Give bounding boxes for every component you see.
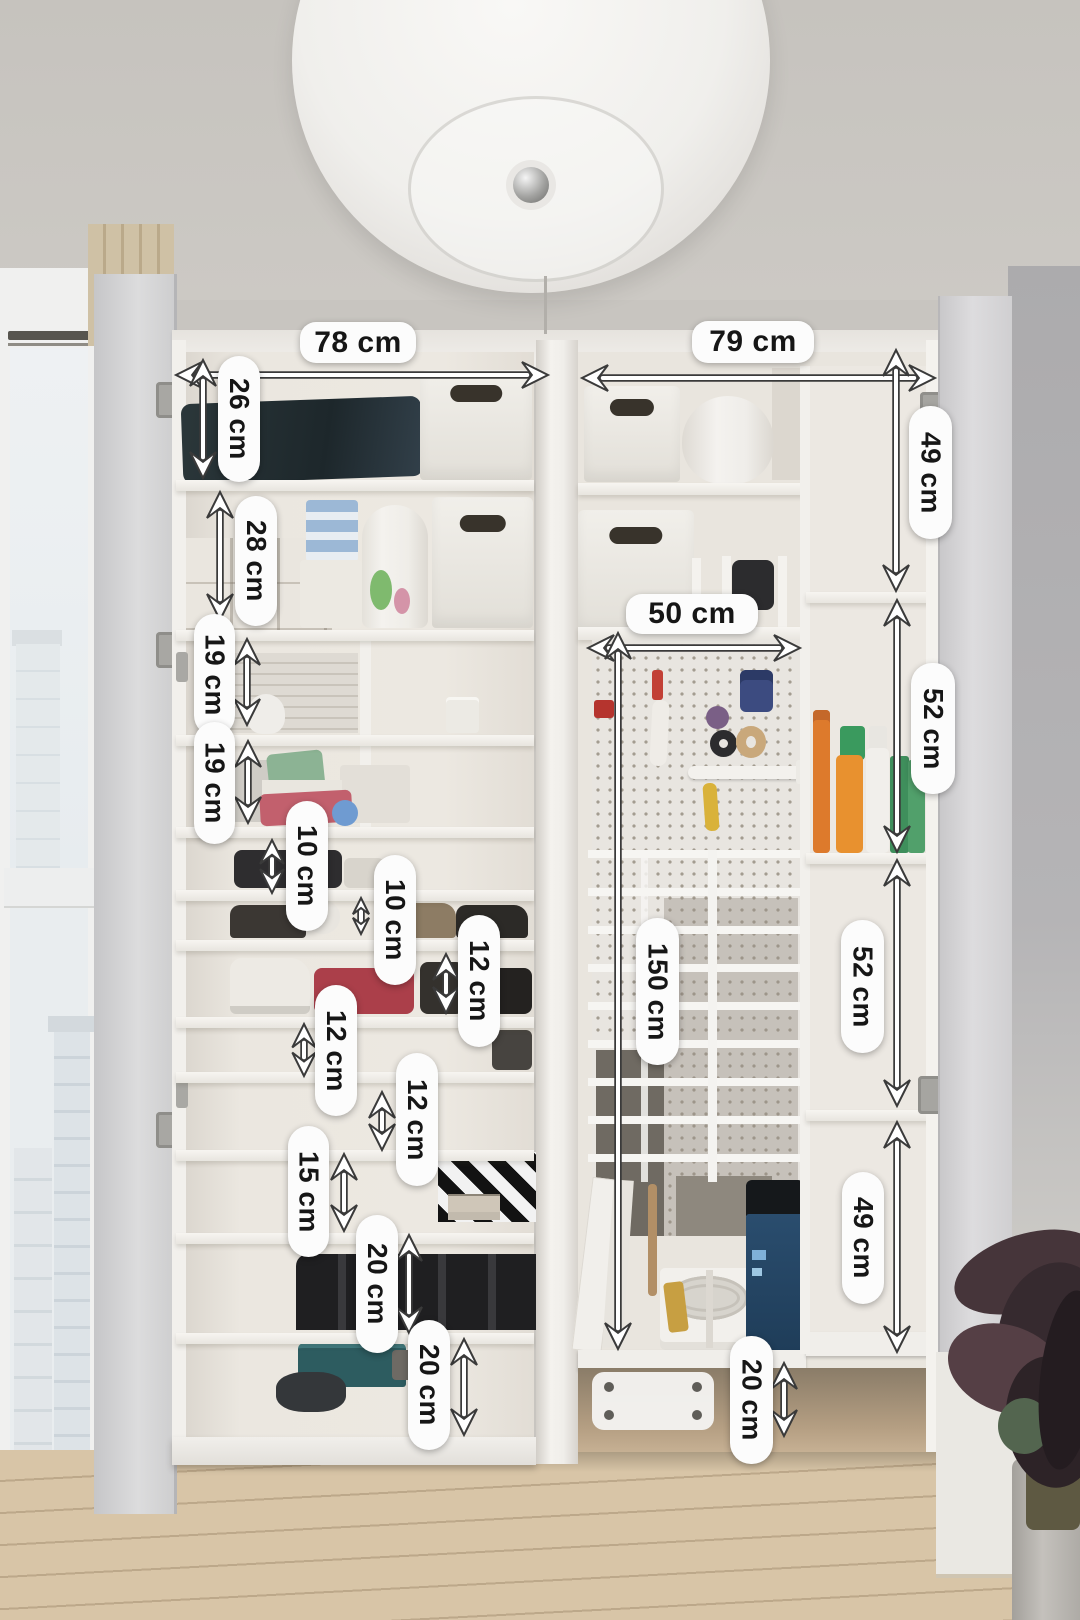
divider-slat	[778, 556, 787, 638]
tan-tape-ring	[736, 726, 766, 758]
spray-bottle-orange	[836, 755, 863, 853]
bin-handle-slot	[609, 527, 662, 544]
cabinet-shelf	[578, 483, 804, 495]
drying-rack	[588, 850, 800, 1182]
dark-shoe	[420, 962, 464, 1014]
white-jar	[247, 694, 285, 734]
toolbox-lid	[746, 1180, 804, 1216]
cabinet-shelf	[806, 853, 930, 864]
cabinet-shelf	[176, 735, 534, 746]
building-silhouette	[48, 1016, 94, 1032]
scale-foot	[604, 1382, 614, 1392]
wooden-stick	[648, 1184, 657, 1296]
cabinet-shelf	[176, 480, 534, 491]
tension-rod	[688, 766, 804, 779]
building-silhouette	[16, 644, 60, 870]
white-tool	[649, 700, 669, 767]
dark-slippers	[234, 850, 342, 888]
green-can	[908, 760, 925, 853]
left-cabinet-door	[94, 274, 177, 1514]
blue-jar	[740, 670, 773, 712]
window-rail-lower	[8, 343, 90, 346]
light-item	[344, 858, 384, 888]
scale-foot	[604, 1410, 614, 1420]
red-marker	[652, 670, 663, 700]
storage-bin	[584, 386, 680, 482]
dark-item	[492, 1030, 532, 1070]
drying-rack-post	[708, 850, 717, 1182]
red-shoes	[314, 968, 414, 1014]
drying-rack-post	[641, 850, 648, 1182]
vacuum-storage-bag	[181, 396, 424, 484]
cabinet-shelf	[176, 1233, 534, 1244]
red-tape	[594, 700, 614, 718]
body-scale	[592, 1372, 714, 1430]
bin-handle-slot	[459, 515, 505, 532]
lamp-knob-metal	[513, 167, 549, 203]
storage-bin	[432, 497, 533, 628]
cabinet-shelf	[176, 630, 534, 641]
building-silhouette	[54, 1032, 90, 1454]
towel-print-pink	[394, 588, 410, 614]
divider-slat	[722, 556, 731, 638]
spray-bottle-white	[866, 748, 889, 853]
window-rail	[8, 331, 90, 340]
left-cabinet-side	[172, 340, 186, 1462]
shoe	[456, 905, 528, 938]
cabinet-shelf	[806, 1110, 930, 1121]
window-crossbar	[4, 868, 96, 908]
green-can	[890, 756, 909, 853]
towel-print-green	[370, 570, 392, 610]
black-item	[732, 560, 774, 610]
hinge-cup	[176, 652, 188, 682]
cabinet-shelf	[176, 1333, 534, 1344]
purple-coil	[706, 706, 729, 729]
black-shoe	[468, 968, 532, 1014]
cabinet-shelf	[176, 827, 534, 838]
shoe	[404, 903, 456, 938]
cabinet-shelf	[176, 940, 534, 951]
white-roll	[682, 396, 774, 484]
blue-item	[332, 800, 358, 826]
divider-slat	[692, 558, 701, 638]
building-silhouette	[14, 1148, 52, 1454]
left-cabinet-base	[172, 1437, 536, 1465]
bin-handle-slot	[450, 385, 502, 402]
toolbox-label	[752, 1250, 766, 1260]
black-tape-ring	[710, 730, 737, 757]
storage-bin	[420, 370, 532, 480]
storage-bin	[578, 510, 694, 634]
right-cabinet-bottom-board	[578, 1350, 806, 1370]
center-divider	[536, 340, 578, 1464]
blue-pack	[306, 500, 358, 562]
white-pack	[300, 560, 362, 628]
cabinet-shelf	[806, 592, 930, 603]
scale-foot	[692, 1410, 702, 1420]
annotated-closet-photo: 78 cm79 cm50 cm26 cm28 cm19 cm19 cm10 cm…	[0, 0, 1080, 1620]
white-ball	[306, 900, 340, 934]
cabinet-top-seam	[544, 276, 547, 334]
bin-handle-slot	[610, 399, 654, 416]
cabinet-shelf	[176, 1017, 534, 1028]
shoebox-label	[448, 1194, 500, 1220]
right-column-bottom-board	[806, 1332, 930, 1356]
blue-toolbox	[746, 1214, 804, 1350]
right-cabinet-side	[926, 340, 938, 1452]
cabinet-shelf	[176, 1072, 534, 1083]
cabinet-shelf	[176, 890, 534, 901]
cabinet-shelf	[578, 627, 806, 640]
scale-foot	[692, 1382, 702, 1392]
corner-shade	[772, 368, 800, 480]
white-sneaker	[230, 958, 310, 1014]
caddy-divider	[706, 1270, 713, 1348]
spray-bottle-orange-slim	[813, 710, 830, 853]
boots-row	[296, 1254, 548, 1330]
white-can	[446, 697, 479, 733]
cabinet-shelf	[176, 1150, 534, 1161]
strap-pile	[276, 1372, 346, 1412]
shoe	[230, 905, 306, 938]
grey-item	[392, 1350, 426, 1380]
toolbox-label	[752, 1268, 762, 1276]
